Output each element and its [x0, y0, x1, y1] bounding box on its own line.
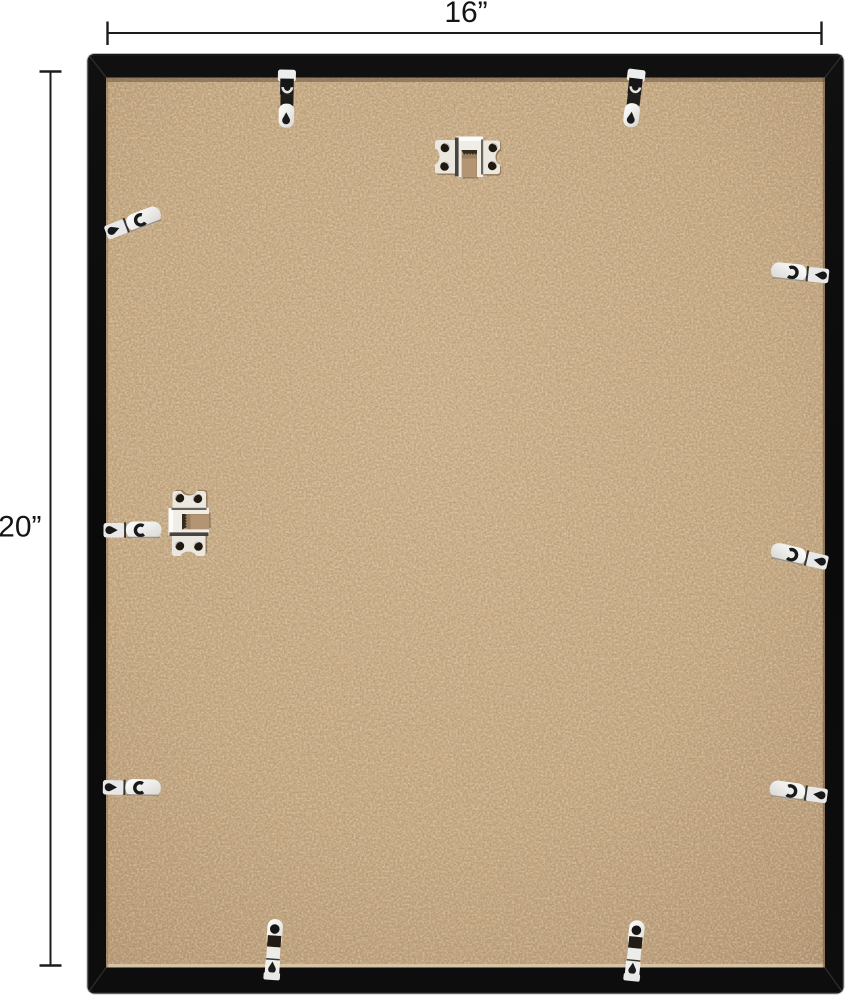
svg-text:20”: 20” — [0, 511, 42, 544]
svg-text:16”: 16” — [444, 0, 487, 29]
